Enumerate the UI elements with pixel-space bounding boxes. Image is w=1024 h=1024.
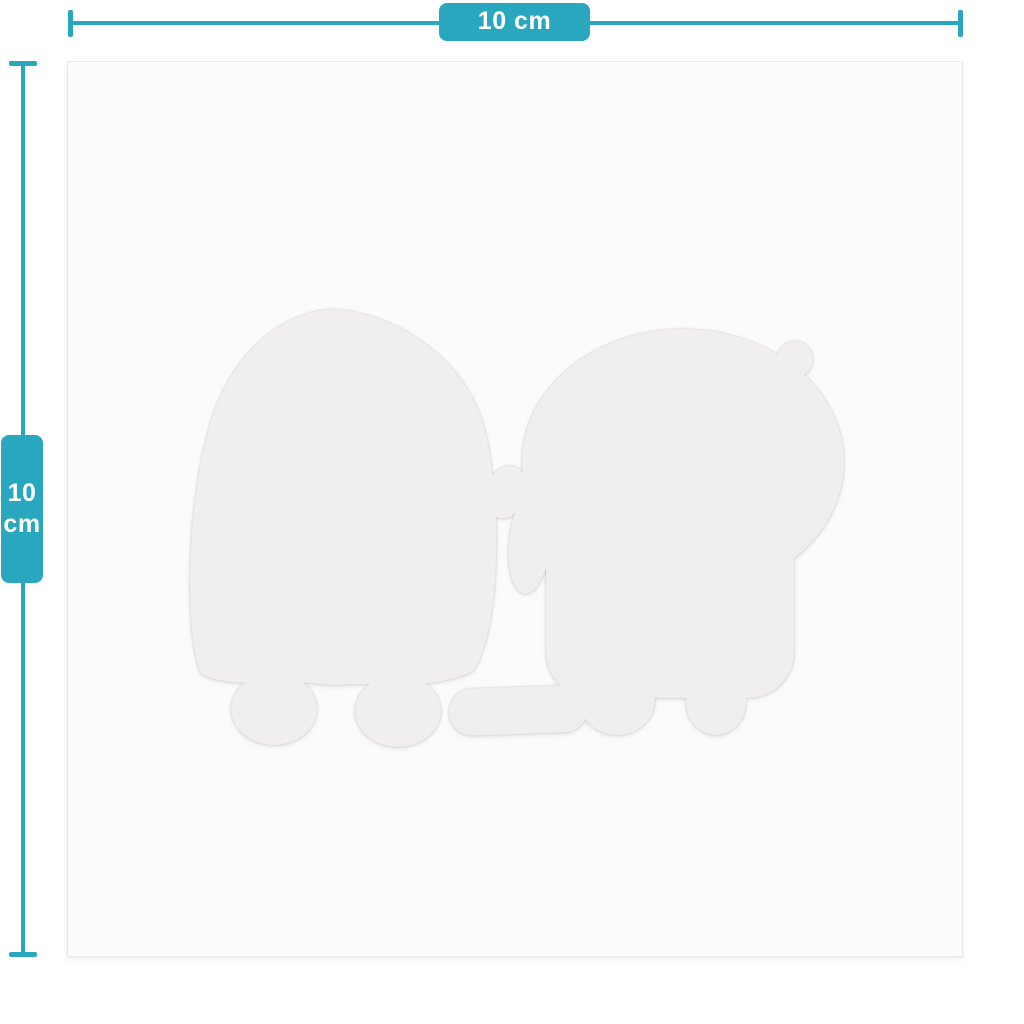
sticker-sheet — [67, 61, 963, 957]
height-dimension-bottom-tick — [9, 952, 37, 957]
left-minion-silhouette — [190, 309, 533, 747]
height-dimension-value: 10 — [8, 478, 37, 509]
height-dimension-top-tick — [9, 61, 37, 66]
right-minion-silhouette — [504, 329, 844, 735]
width-dimension-label: 10 cm — [439, 3, 590, 41]
product-size-guide: 10 cm 10 cm — [0, 0, 1024, 1024]
silhouettes-graphic — [68, 62, 964, 958]
height-dimension-label: 10 cm — [1, 435, 43, 583]
height-dimension-unit: cm — [3, 509, 40, 540]
banana-silhouette — [448, 685, 588, 737]
width-dimension-left-tick — [68, 10, 73, 37]
width-dimension-right-tick — [958, 10, 963, 37]
